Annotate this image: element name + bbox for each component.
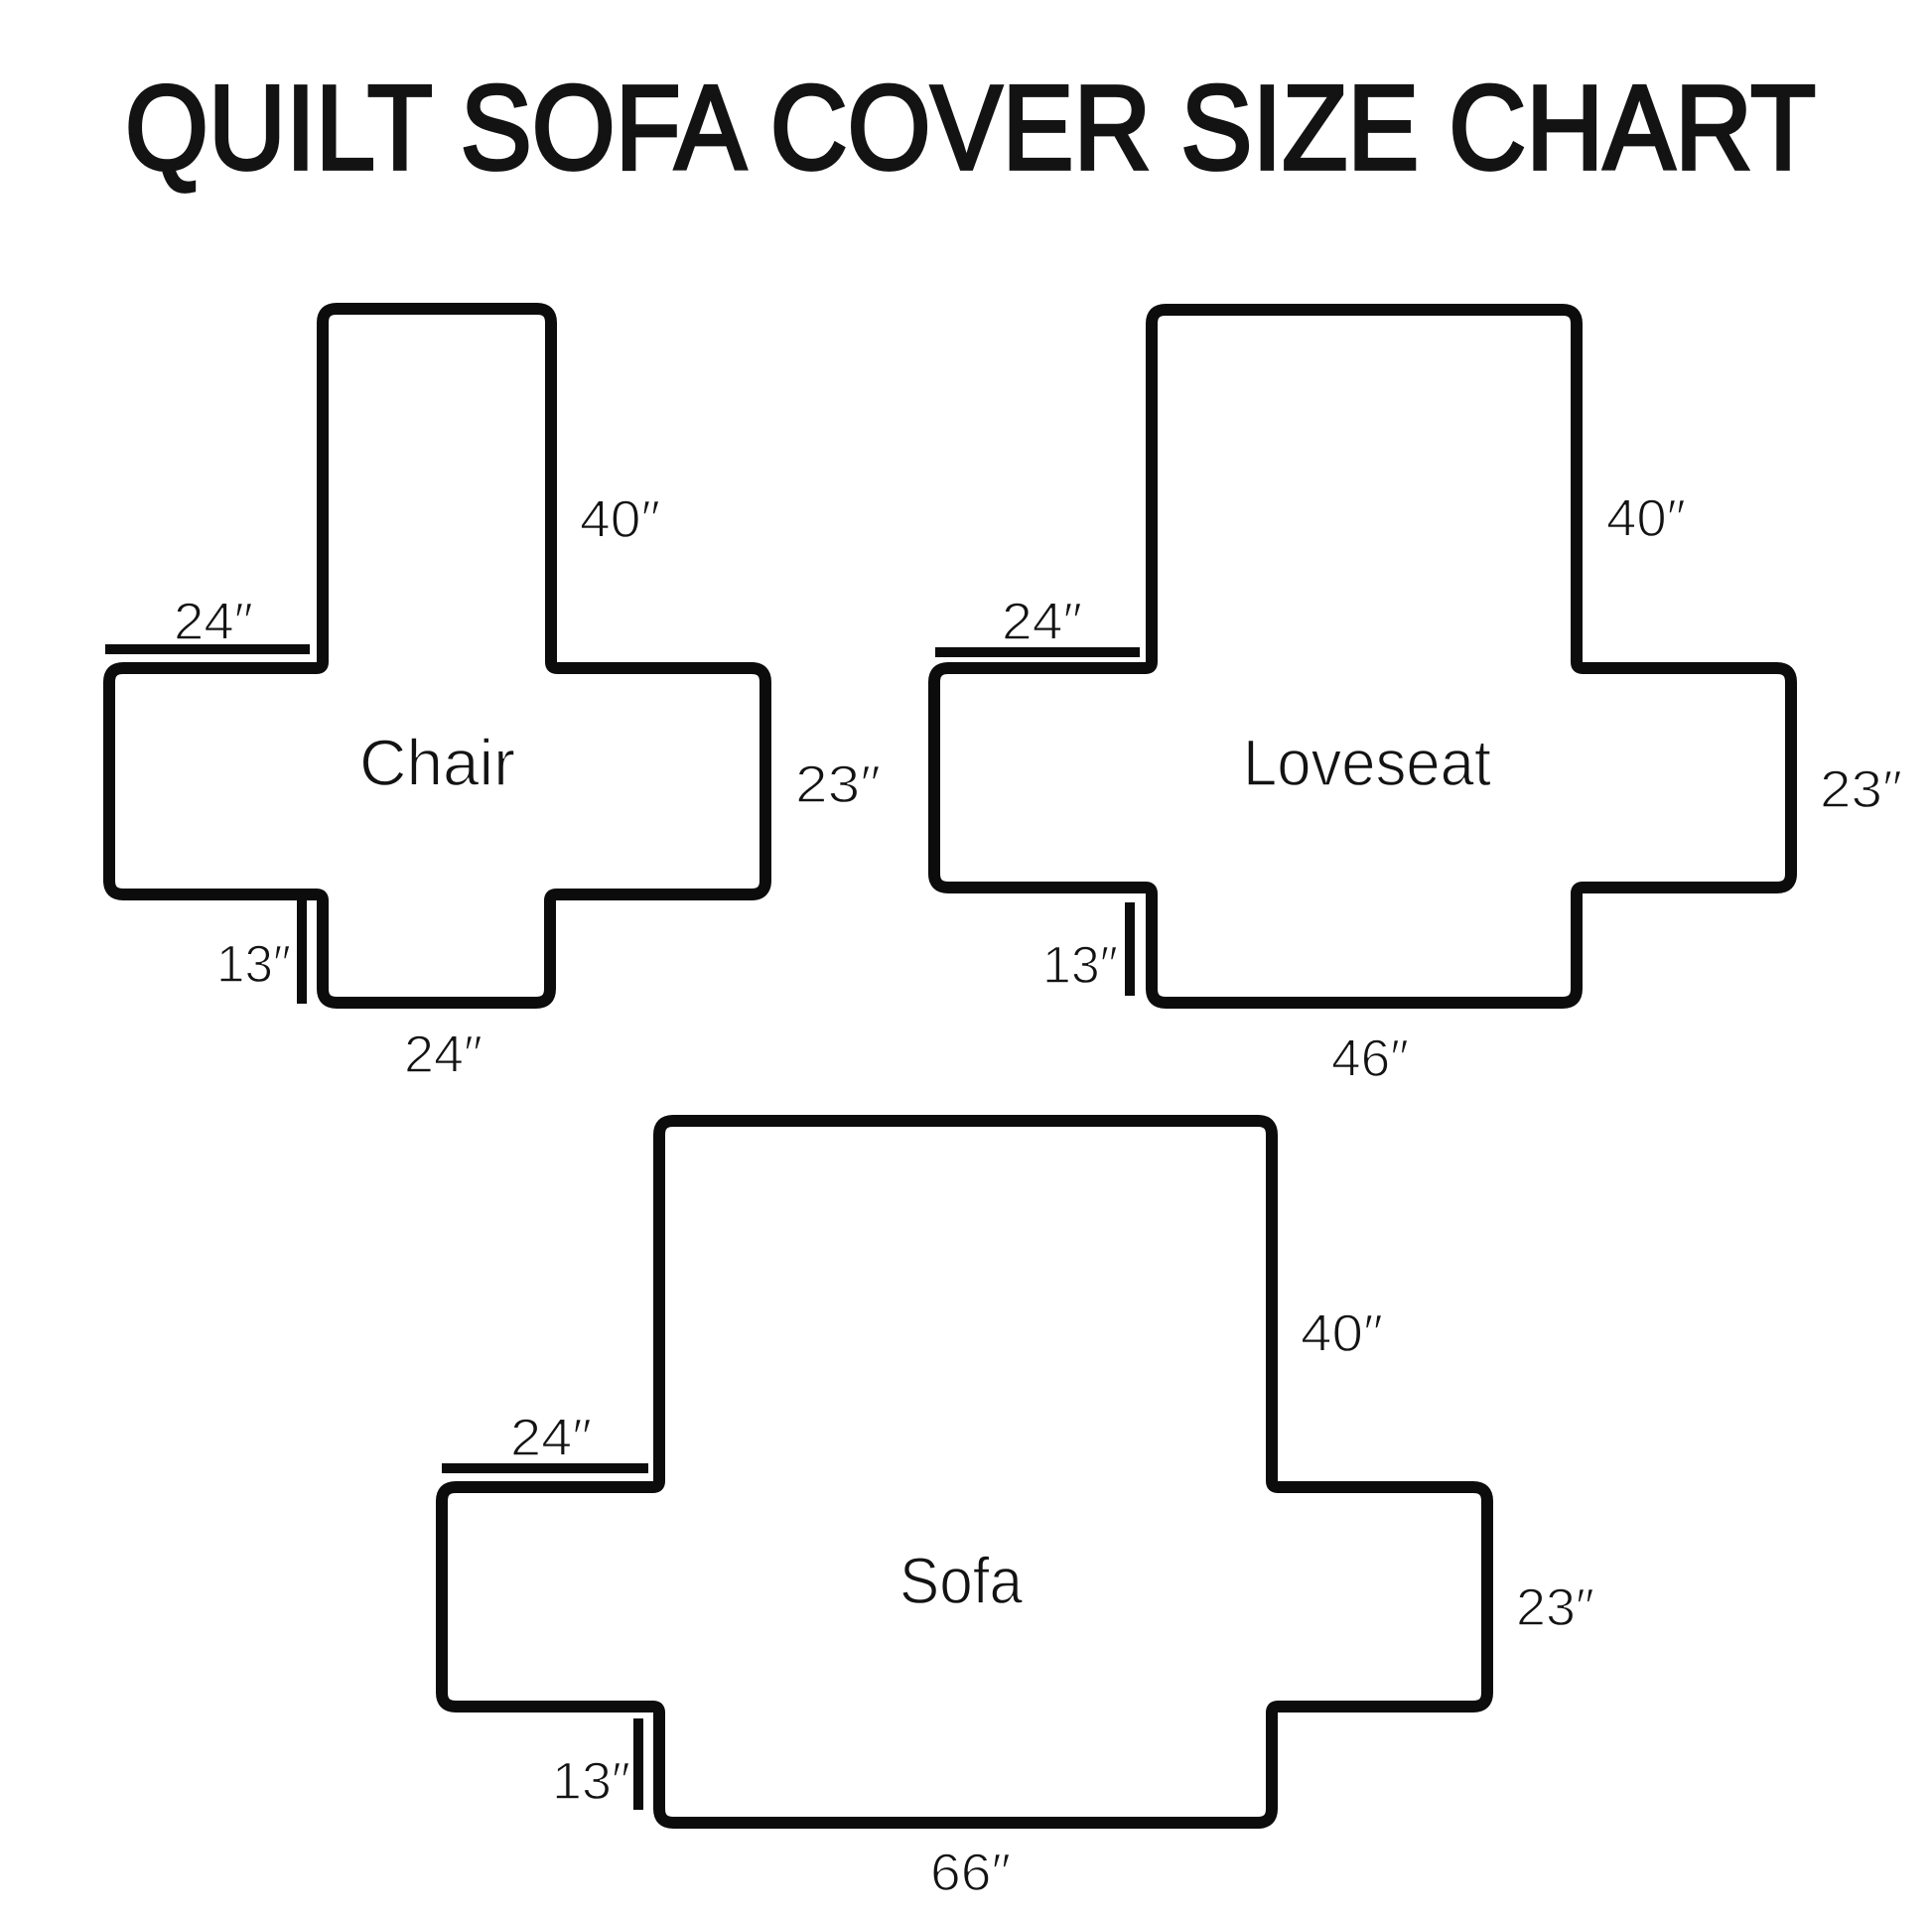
svg-text:40″: 40″ <box>580 490 660 549</box>
svg-text:24″: 24″ <box>404 1026 483 1084</box>
svg-text:13″: 13″ <box>216 935 291 994</box>
svg-text:66″: 66″ <box>930 1844 1011 1902</box>
svg-text:13″: 13″ <box>1042 936 1118 995</box>
svg-text:24″: 24″ <box>1002 593 1082 651</box>
svg-text:13″: 13″ <box>552 1752 630 1811</box>
svg-text:24″: 24″ <box>510 1409 592 1467</box>
svg-text:46″: 46″ <box>1331 1029 1409 1088</box>
svg-text:40″: 40″ <box>1606 489 1686 548</box>
svg-text:24″: 24″ <box>174 593 253 651</box>
svg-text:Chair: Chair <box>359 726 515 799</box>
svg-text:Loveseat: Loveseat <box>1243 726 1491 799</box>
svg-text:Sofa: Sofa <box>899 1544 1023 1617</box>
svg-text:40″: 40″ <box>1301 1304 1383 1363</box>
svg-text:23″: 23″ <box>795 755 881 814</box>
svg-text:QUILT SOFA COVER SIZE CHART: QUILT SOFA COVER SIZE CHART <box>125 60 1816 195</box>
svg-text:23″: 23″ <box>1820 760 1902 819</box>
svg-text:23″: 23″ <box>1516 1578 1594 1637</box>
